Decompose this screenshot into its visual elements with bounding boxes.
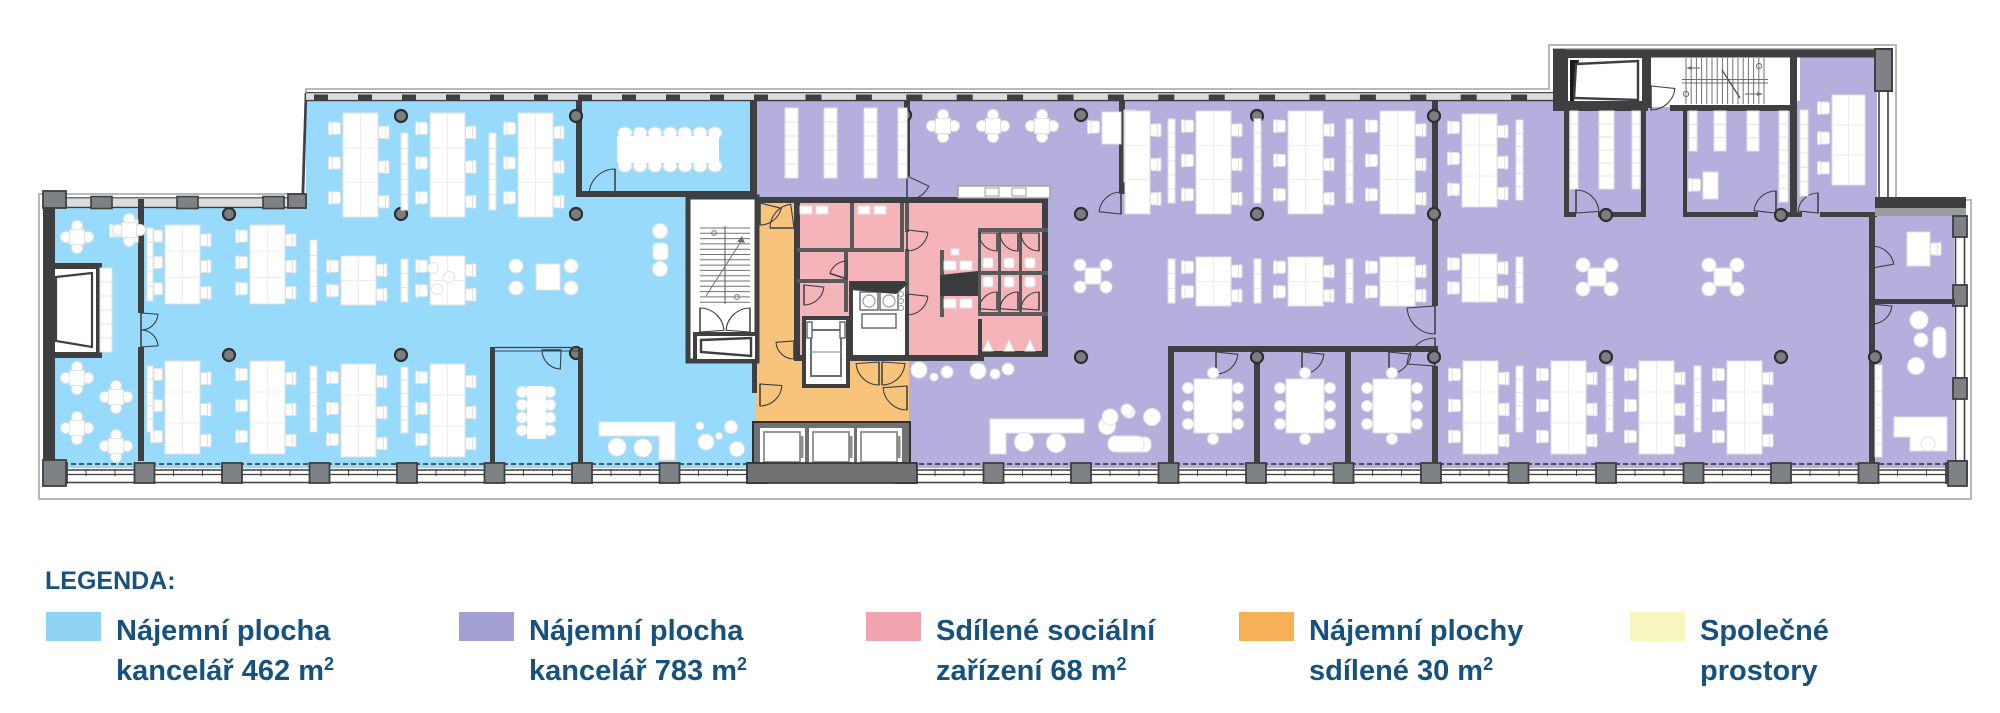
svg-text:prostory: prostory [1700,655,1818,687]
svg-text:kancelář 462 m2: kancelář 462 m2 [116,654,334,687]
svg-text:sdílené 30 m2: sdílené 30 m2 [1309,654,1493,687]
svg-text:Nájemní plocha: Nájemní plocha [529,615,744,647]
svg-text:Společné: Společné [1700,615,1829,647]
svg-text:Nájemní plochy: Nájemní plochy [1309,615,1523,647]
svg-text:Nájemní plocha: Nájemní plocha [116,615,331,647]
svg-text:Sdílené sociální: Sdílené sociální [936,615,1156,647]
svg-text:LEGENDA:: LEGENDA: [45,567,176,595]
svg-text:zařízení 68 m2: zařízení 68 m2 [936,654,1127,687]
svg-text:kancelář 783 m2: kancelář 783 m2 [529,654,747,687]
